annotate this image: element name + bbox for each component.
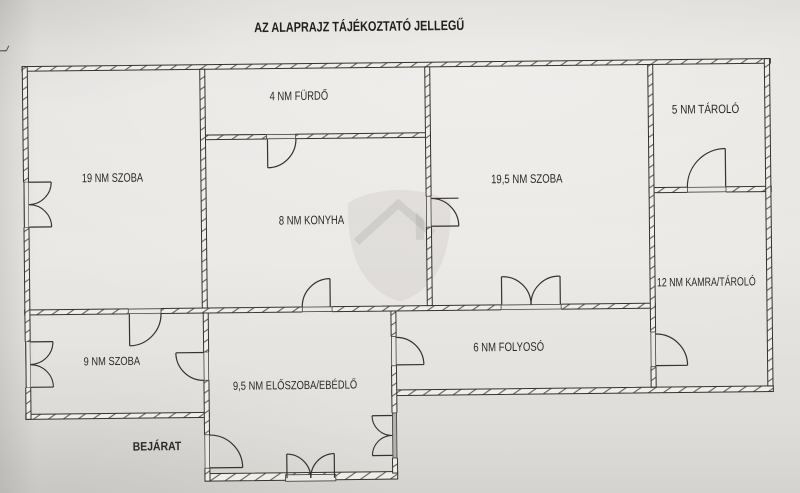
svg-text:BEJÁRAT: BEJÁRAT (133, 438, 182, 454)
svg-text:12 NM KAMRA/TÁROLÓ: 12 NM KAMRA/TÁROLÓ (657, 273, 756, 289)
svg-text:19,5 NM SZOBA: 19,5 NM SZOBA (491, 172, 563, 187)
svg-text:8 NM KONYHA: 8 NM KONYHA (279, 213, 345, 228)
svg-text:19 NM SZOBA: 19 NM SZOBA (82, 171, 144, 186)
svg-text:6 NM FOLYOSÓ: 6 NM FOLYOSÓ (473, 339, 544, 355)
svg-text:5 NM TÁROLÓ: 5 NM TÁROLÓ (672, 101, 740, 117)
svg-text:9,5 NM ELŐSZOBA/EBÉDLŐ: 9,5 NM ELŐSZOBA/EBÉDLŐ (233, 377, 357, 392)
svg-text:AZ ALAPRAJZ TÁJÉKOZTATÓ JELLEG: AZ ALAPRAJZ TÁJÉKOZTATÓ JELLEGŰ (254, 16, 464, 35)
svg-text:9 NM SZOBA: 9 NM SZOBA (84, 355, 141, 369)
svg-text:4 NM FÜRDŐ: 4 NM FÜRDŐ (270, 88, 329, 104)
